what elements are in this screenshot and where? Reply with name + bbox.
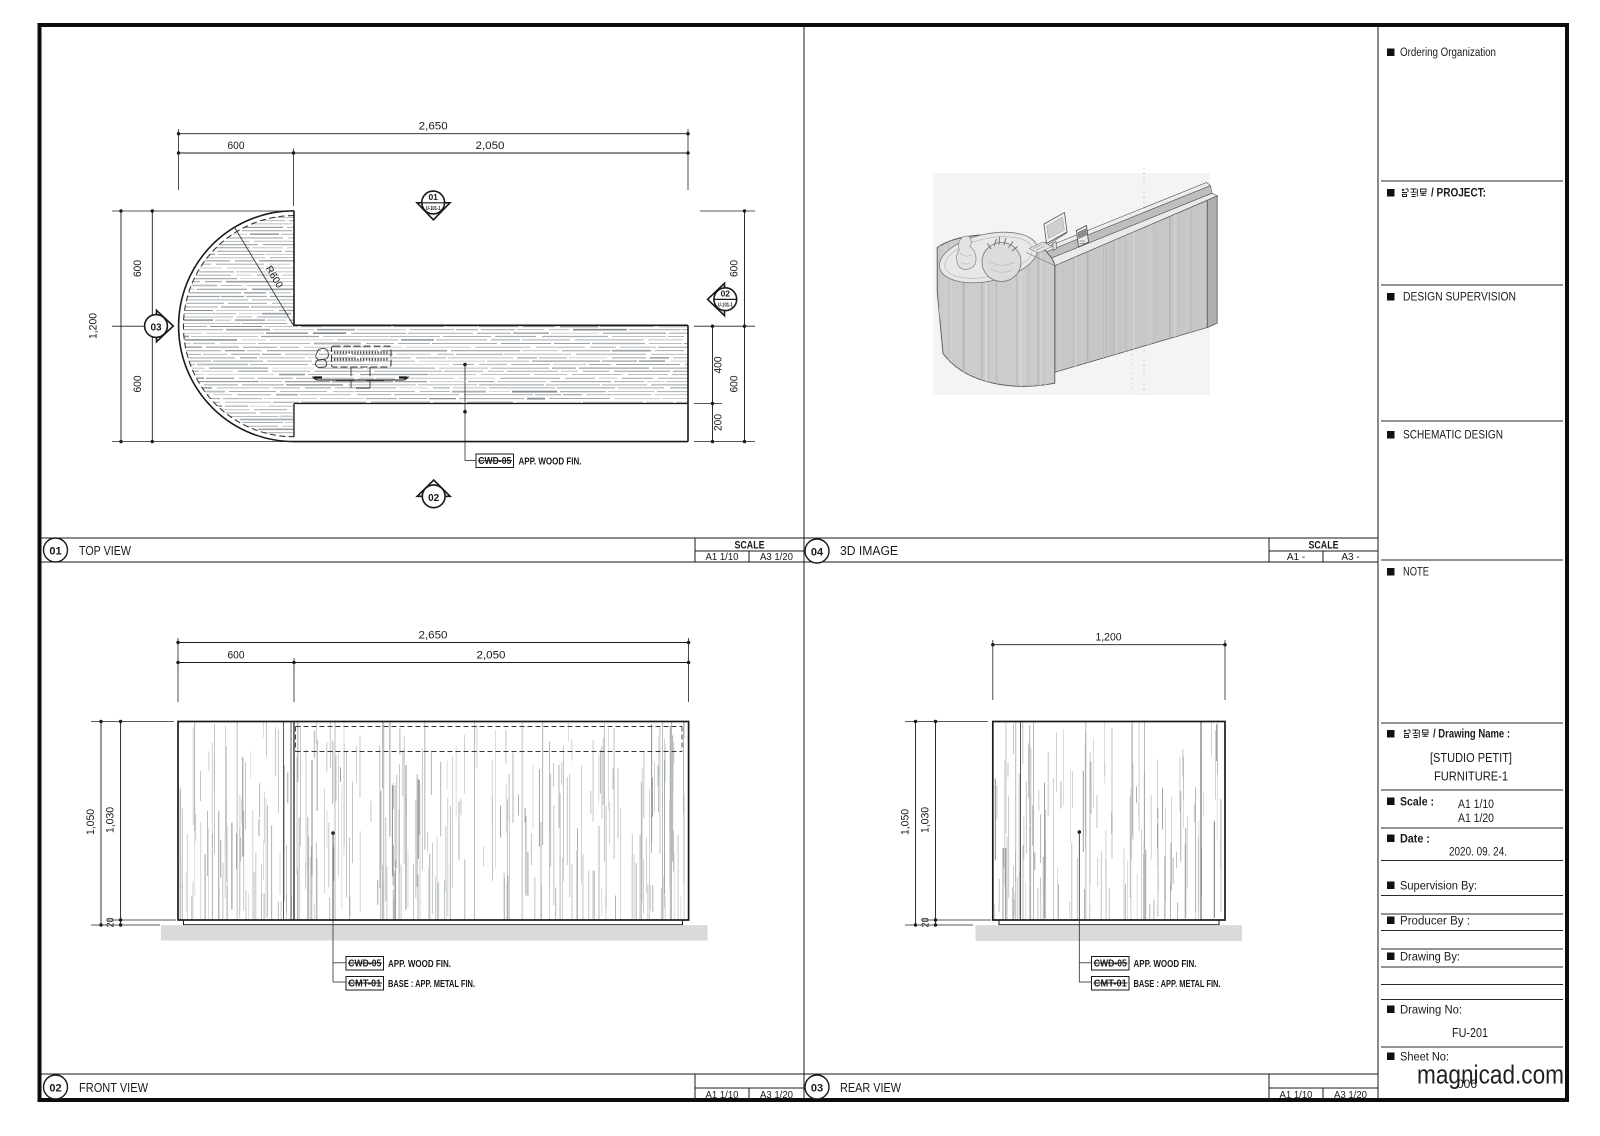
svg-text:DESIGN SUPERVISION: DESIGN SUPERVISION	[1403, 292, 1516, 304]
svg-text:1,030: 1,030	[920, 807, 932, 833]
svg-text:A1 1/20: A1 1/20	[1458, 813, 1494, 825]
svg-text:04: 04	[811, 547, 824, 559]
svg-text:magnicad.com: magnicad.com	[1417, 1062, 1564, 1090]
svg-text:1,200: 1,200	[1096, 632, 1122, 644]
svg-text:3D IMAGE: 3D IMAGE	[840, 543, 898, 558]
svg-text:02: 02	[721, 289, 731, 299]
svg-text:Ordering Organization: Ordering Organization	[1400, 47, 1496, 59]
svg-text:A1 1/10: A1 1/10	[1458, 799, 1494, 811]
svg-text:600: 600	[228, 649, 245, 661]
svg-text:/ Drawing Name :: / Drawing Name :	[1433, 729, 1510, 741]
svg-text:2,050: 2,050	[477, 649, 506, 661]
svg-text:600: 600	[228, 140, 245, 152]
svg-text:FU-201: FU-201	[1452, 1025, 1488, 1040]
svg-text:2,650: 2,650	[419, 121, 448, 133]
svg-text:2,050: 2,050	[476, 140, 505, 152]
svg-text:Scale :: Scale :	[1400, 797, 1434, 809]
svg-text:CWD-05: CWD-05	[348, 959, 381, 970]
svg-text:02: 02	[49, 1083, 61, 1095]
svg-text:Drawing No:: Drawing No:	[1400, 1005, 1462, 1017]
svg-text:SCALE: SCALE	[1309, 540, 1339, 552]
svg-text:/ PROJECT:: / PROJECT:	[1431, 188, 1486, 200]
svg-text:U-101-1: U-101-1	[426, 206, 441, 212]
svg-text:CMT-01: CMT-01	[348, 979, 381, 990]
svg-text:APP. WOOD FIN.: APP. WOOD FIN.	[1134, 958, 1197, 970]
svg-text:A3 1/20: A3 1/20	[760, 552, 793, 563]
svg-text:03: 03	[150, 323, 162, 334]
svg-text:A1 1/10: A1 1/10	[706, 1090, 739, 1101]
svg-text:CWD-05: CWD-05	[1094, 959, 1127, 970]
svg-text:BASE : APP. METAL FIN.: BASE : APP. METAL FIN.	[1134, 978, 1221, 990]
svg-text:SCHEMATIC DESIGN: SCHEMATIC DESIGN	[1403, 430, 1503, 442]
svg-text:TOP VIEW: TOP VIEW	[79, 543, 132, 558]
svg-text:SCALE: SCALE	[735, 540, 765, 552]
svg-text:200: 200	[713, 414, 725, 431]
svg-text:20: 20	[106, 917, 117, 927]
svg-text:600: 600	[729, 376, 741, 393]
svg-text:FRONT VIEW: FRONT VIEW	[79, 1080, 149, 1095]
svg-text:CMT-01: CMT-01	[1094, 979, 1127, 990]
svg-text:01: 01	[428, 192, 438, 202]
svg-text:02: 02	[428, 493, 440, 504]
svg-text:1,030: 1,030	[105, 807, 117, 833]
svg-text:600: 600	[729, 260, 741, 277]
svg-text:Producer By :: Producer By :	[1400, 916, 1470, 928]
svg-text:NOTE: NOTE	[1403, 567, 1429, 579]
svg-text:1,050: 1,050	[900, 809, 912, 835]
svg-text:Drawing By:: Drawing By:	[1400, 952, 1460, 964]
svg-text:A3 -: A3 -	[1341, 552, 1359, 563]
svg-text:03: 03	[811, 1083, 823, 1095]
svg-text:BASE : APP. METAL FIN.: BASE : APP. METAL FIN.	[388, 978, 475, 990]
svg-text:600: 600	[132, 260, 144, 277]
svg-text:Supervision By:: Supervision By:	[1400, 881, 1477, 893]
svg-text:REAR VIEW: REAR VIEW	[840, 1080, 902, 1095]
svg-text:2,650: 2,650	[419, 629, 448, 641]
svg-text:Date :: Date :	[1400, 834, 1430, 846]
svg-text:APP. WOOD FIN.: APP. WOOD FIN.	[519, 455, 582, 467]
svg-text:A3 1/20: A3 1/20	[1334, 1090, 1367, 1101]
svg-text:A3 1/20: A3 1/20	[760, 1090, 793, 1101]
svg-text:600: 600	[132, 376, 144, 393]
svg-text:A1 -: A1 -	[1287, 552, 1305, 563]
svg-text:01: 01	[49, 546, 61, 558]
svg-text:1,050: 1,050	[85, 809, 97, 835]
svg-text:2020. 09. 24.: 2020. 09. 24.	[1449, 847, 1507, 859]
svg-text:A1 1/10: A1 1/10	[1280, 1090, 1313, 1101]
svg-text:FURNITURE-1: FURNITURE-1	[1434, 769, 1508, 784]
svg-text:[STUDIO PETIT]: [STUDIO PETIT]	[1430, 750, 1512, 765]
svg-text:U-101-1: U-101-1	[718, 302, 733, 308]
svg-text:CWD-05: CWD-05	[478, 456, 511, 467]
svg-text:APP. WOOD FIN.: APP. WOOD FIN.	[388, 958, 451, 970]
svg-text:20: 20	[921, 917, 932, 927]
svg-text:A1 1/10: A1 1/10	[706, 552, 739, 563]
svg-text:400: 400	[713, 357, 725, 374]
svg-text:1,200: 1,200	[88, 313, 100, 339]
